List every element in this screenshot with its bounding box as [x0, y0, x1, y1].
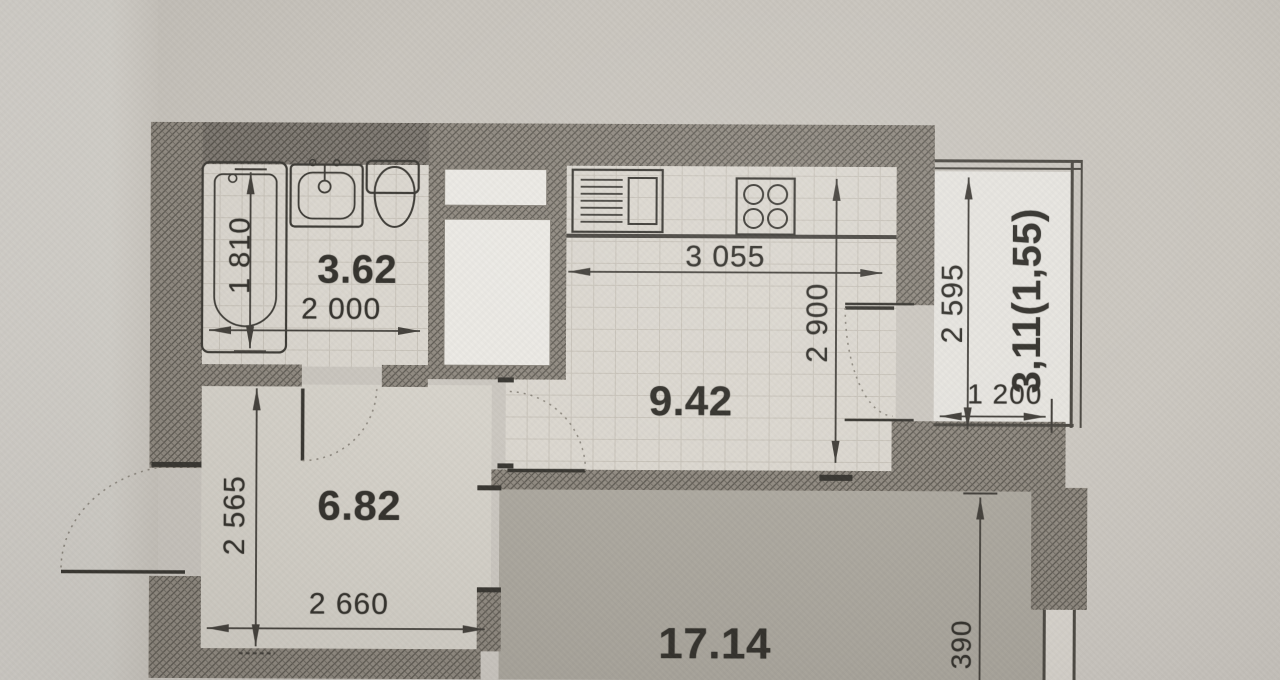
dim-label-bathtub-length: 1 810 [223, 190, 258, 320]
wall-bottom [149, 648, 481, 679]
window-glass [1046, 610, 1073, 680]
entrance-door [61, 465, 185, 572]
wall-hallway-living-stub [477, 591, 501, 651]
wall-left-upper [149, 122, 203, 468]
dim-label-kitchen-depth: 2 900 [801, 253, 836, 393]
dim-label-balcony-length: 2 595 [936, 233, 971, 373]
wall-bathroom-bottom-left [202, 364, 302, 386]
floor-plan-canvas [0, 0, 1280, 680]
window-line-right [1073, 610, 1076, 680]
room-area-label-living-room: 17.14 [605, 617, 825, 672]
shaft-opening-lower [444, 219, 551, 365]
room-area-label-kitchen: 9.42 [601, 375, 781, 428]
window-line-left [1043, 610, 1046, 680]
dim-line-bathroom-width [209, 330, 420, 331]
dim-label-living-setback: 390 [945, 594, 977, 680]
wall-right-outer [1031, 488, 1088, 610]
shaft-opening-upper [445, 169, 547, 205]
kitchen-floor-entry [505, 379, 565, 469]
wall-bathroom-bottom-right [382, 365, 428, 387]
dim-line-hallway-depth [256, 388, 257, 646]
room-area-label-hallway: 6.82 [269, 479, 449, 532]
dim-label-balcony-width: 1 200 [940, 378, 1070, 411]
living-window [1043, 610, 1076, 680]
dim-label-hallway-width: 2 660 [269, 587, 429, 622]
dim-line-kitchen-depth [835, 179, 836, 463]
dim-line-living-setback [980, 497, 981, 680]
dim-label-bathroom-width: 2 000 [266, 292, 416, 327]
dim-line-hallway-width [207, 628, 485, 629]
floor-plan-photo: 3.62 9.42 6.82 17.14 3,11(1,55) 1 810 2 … [0, 0, 1280, 680]
floor-plan-drawing: 3.62 9.42 6.82 17.14 3,11(1,55) 1 810 2 … [0, 0, 1280, 680]
dim-label-hallway-depth: 2 565 [218, 445, 253, 585]
room-area-label-bathroom: 3.62 [272, 244, 442, 295]
wall-kitchen-balcony-upper [896, 125, 935, 305]
balcony-edge-right-inner [1080, 160, 1083, 428]
dim-label-kitchen-width: 3 055 [650, 240, 800, 275]
